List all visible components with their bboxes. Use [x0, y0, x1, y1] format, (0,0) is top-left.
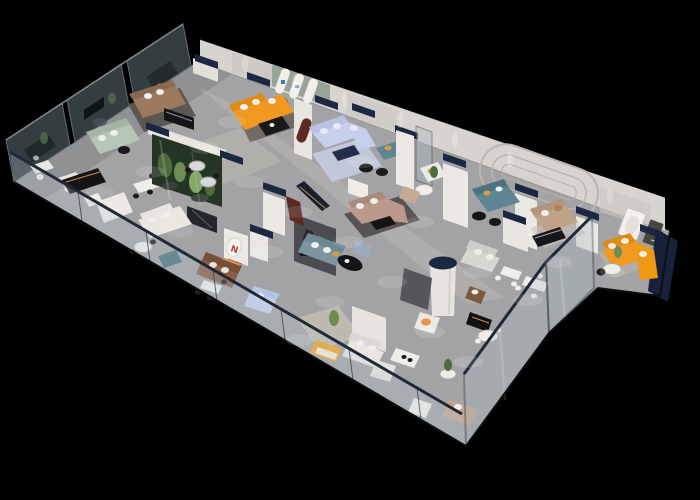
showroom-isometric-scene: ɔN	[0, 0, 700, 500]
floorplan-3d-render: ɔN	[0, 0, 700, 500]
column-navy-top	[429, 257, 457, 270]
pillow	[110, 130, 118, 136]
floor-light-pool	[253, 246, 283, 258]
wall-light-streak	[507, 152, 513, 168]
pilaster	[396, 130, 414, 190]
pillow	[472, 290, 479, 295]
dining-chair	[495, 276, 501, 281]
pillow	[541, 210, 549, 216]
pillow	[162, 212, 170, 218]
cafe-table	[200, 177, 216, 187]
coffee-table-black-round	[489, 218, 501, 226]
pillow	[421, 319, 431, 326]
pillow	[356, 203, 364, 209]
dining-chair	[133, 194, 139, 199]
pillow	[356, 340, 364, 346]
pillow	[156, 89, 164, 95]
terrarium-plant	[174, 162, 186, 182]
table-decor	[345, 259, 350, 263]
column-shade	[449, 266, 450, 314]
pillow	[484, 191, 491, 196]
floor-light-pool	[135, 166, 165, 178]
floor-light-pool	[315, 296, 345, 308]
pillow	[323, 247, 331, 253]
wall-light-streak	[292, 74, 298, 90]
cafe-chair	[213, 174, 219, 179]
table-decor	[408, 358, 413, 362]
side-table	[118, 146, 130, 154]
pillow	[333, 252, 340, 257]
floor-light-pool	[415, 326, 445, 338]
pillow	[385, 146, 392, 151]
column-white-body	[430, 264, 456, 316]
pillow	[496, 187, 503, 192]
dining-chair	[475, 339, 481, 344]
pillow	[350, 125, 358, 131]
arch-brand-logo	[281, 80, 285, 84]
table-decor	[402, 355, 407, 359]
floor-light-pool	[286, 334, 314, 346]
floor-light-pool	[235, 176, 265, 188]
pillow	[144, 93, 152, 99]
plant	[444, 359, 452, 371]
coffee-table-black-round	[472, 212, 486, 221]
plant	[614, 246, 622, 258]
pillow	[474, 249, 482, 255]
terrarium-rock	[162, 182, 178, 190]
pillow	[320, 128, 328, 134]
pillow	[221, 267, 229, 273]
office-plant	[108, 92, 116, 104]
table-decor	[270, 123, 275, 127]
floor-light-pool	[333, 236, 363, 248]
floor-light-pool	[348, 156, 376, 168]
pillow	[621, 238, 629, 244]
pillow	[608, 243, 616, 249]
plant	[430, 166, 438, 178]
floor-light-pool	[544, 256, 572, 268]
cafe-table	[189, 161, 205, 171]
coffee-table-black-round	[376, 168, 388, 176]
floor-light-pool	[406, 216, 434, 228]
floor-light-pool	[166, 226, 194, 238]
wall-light-streak	[342, 92, 348, 108]
wall-light-streak	[452, 132, 458, 148]
floor-light-pool	[86, 186, 114, 198]
plant	[329, 310, 339, 326]
pillow	[252, 99, 260, 105]
office-plant	[40, 132, 48, 144]
office-chair	[33, 156, 39, 161]
floor-light-pool	[190, 142, 220, 154]
floor-light-pool	[513, 294, 543, 306]
pilaster	[443, 163, 468, 228]
floor-light-pool	[453, 356, 483, 368]
floor-light-pool	[600, 267, 624, 277]
wall-light-streak	[397, 112, 403, 128]
pillow	[148, 217, 156, 223]
wall-light-streak	[242, 56, 248, 72]
pillow	[486, 254, 494, 260]
pillow	[311, 242, 319, 248]
dining-chair	[511, 282, 517, 287]
pillow	[240, 104, 248, 110]
pillow	[268, 98, 276, 104]
cafe-chair	[185, 168, 191, 173]
dining-chair	[515, 286, 521, 291]
pillow	[368, 345, 376, 351]
pillow	[333, 123, 341, 129]
dining-chair	[147, 190, 153, 195]
floor-light-pool	[377, 276, 407, 288]
office-table	[93, 118, 107, 126]
wall-light-streak	[607, 188, 613, 204]
pillow	[639, 251, 647, 257]
floor-light-pool	[463, 266, 493, 278]
pillow	[370, 198, 378, 204]
floor-light-pool	[283, 206, 313, 218]
pillow	[554, 205, 562, 211]
pillow	[98, 135, 106, 141]
floor-light-pool	[218, 116, 246, 128]
